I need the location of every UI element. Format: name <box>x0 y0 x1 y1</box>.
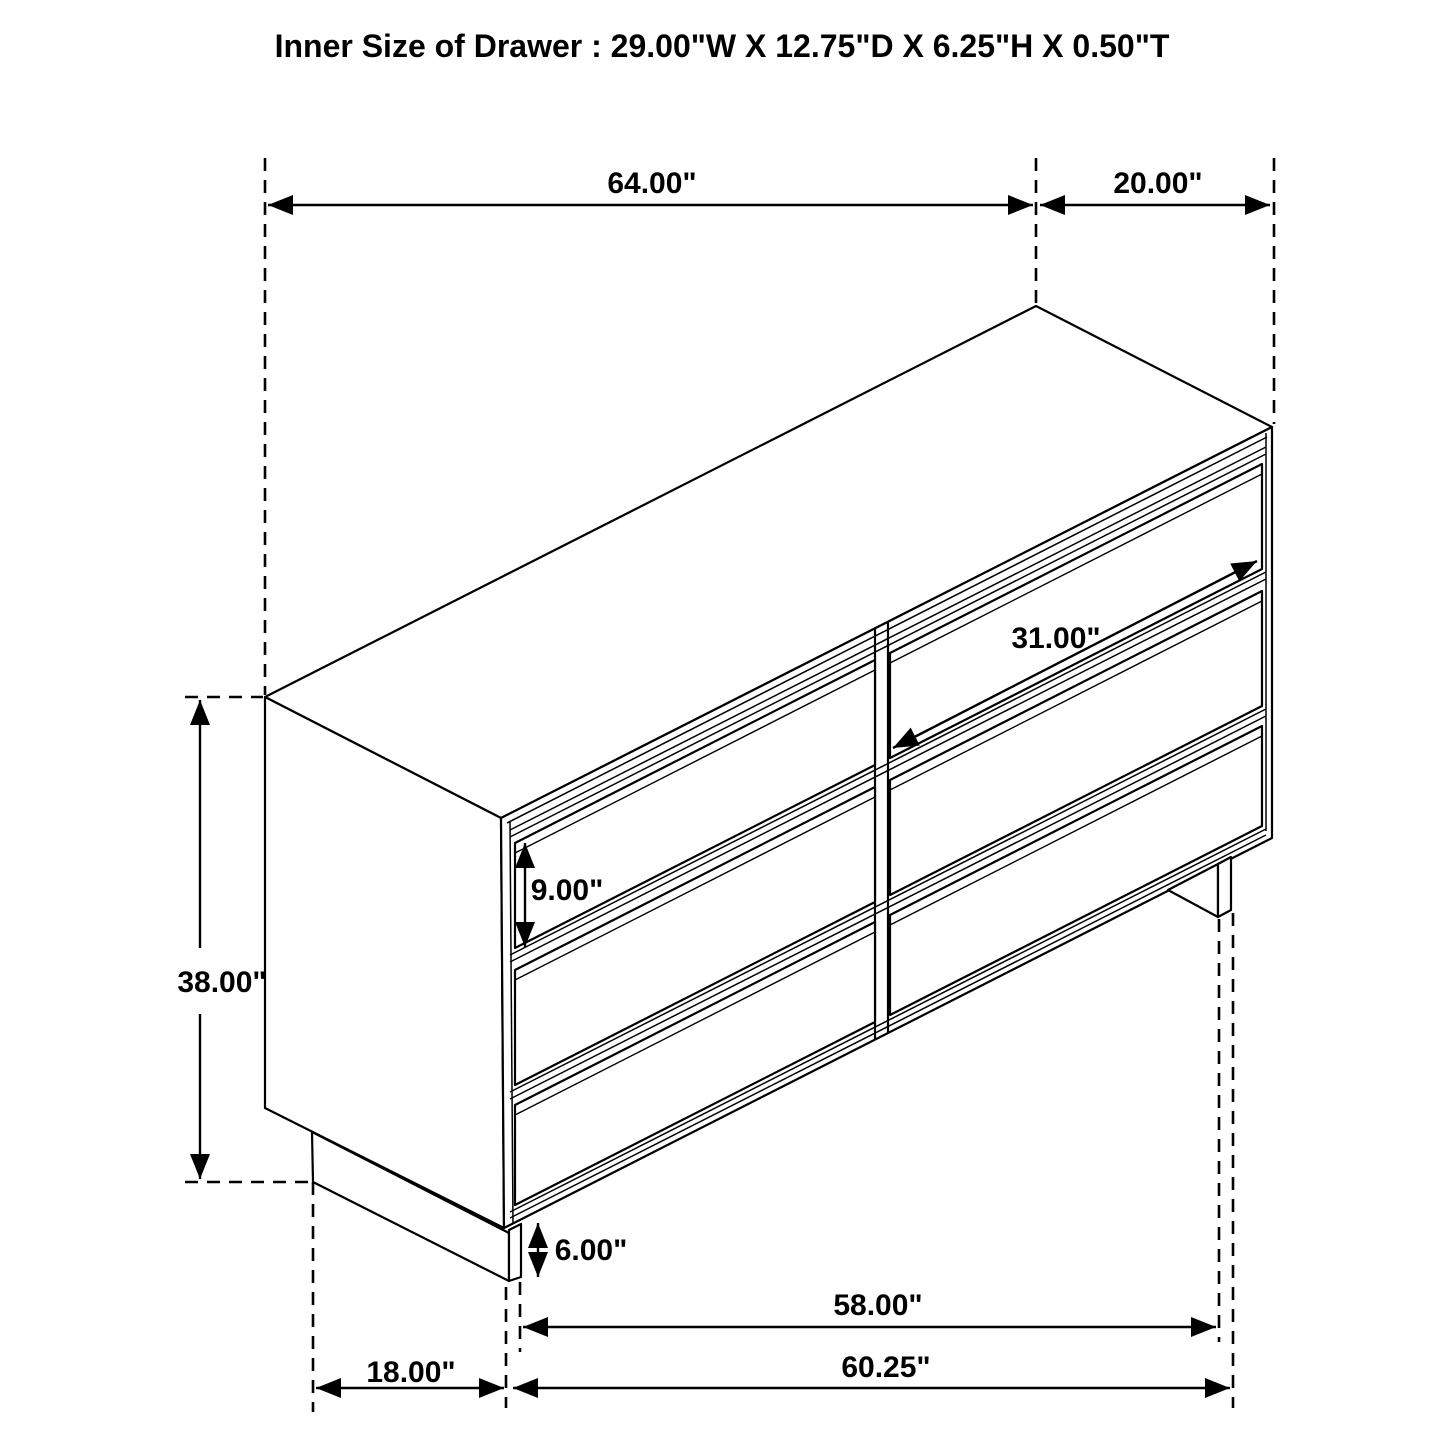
dimension-label-base-width: 58.00" <box>833 1289 922 1322</box>
dimension-label-base-depth: 18.00" <box>366 1356 455 1389</box>
dimension-label-overall-height: 38.00" <box>177 966 266 999</box>
dimension-label-top-width: 64.00" <box>607 167 696 200</box>
dimension-label-base-height: 6.00" <box>555 1234 628 1267</box>
diagram-title: Inner Size of Drawer : 29.00"W X 12.75"D… <box>275 28 1170 64</box>
dimension-label-top-depth: 20.00" <box>1113 167 1202 200</box>
dimension-label-drawer-front-height: 9.00" <box>531 874 604 907</box>
dresser-dimension-diagram: Inner Size of Drawer : 29.00"W X 12.75"D… <box>0 0 1445 1445</box>
dimension-label-bottom-width: 60.25" <box>841 1351 930 1384</box>
dimension-label-drawer-front-width: 31.00" <box>1011 622 1100 655</box>
plinth-front-left-corner <box>509 1224 521 1281</box>
plinth-front-right-corner <box>1218 857 1231 917</box>
